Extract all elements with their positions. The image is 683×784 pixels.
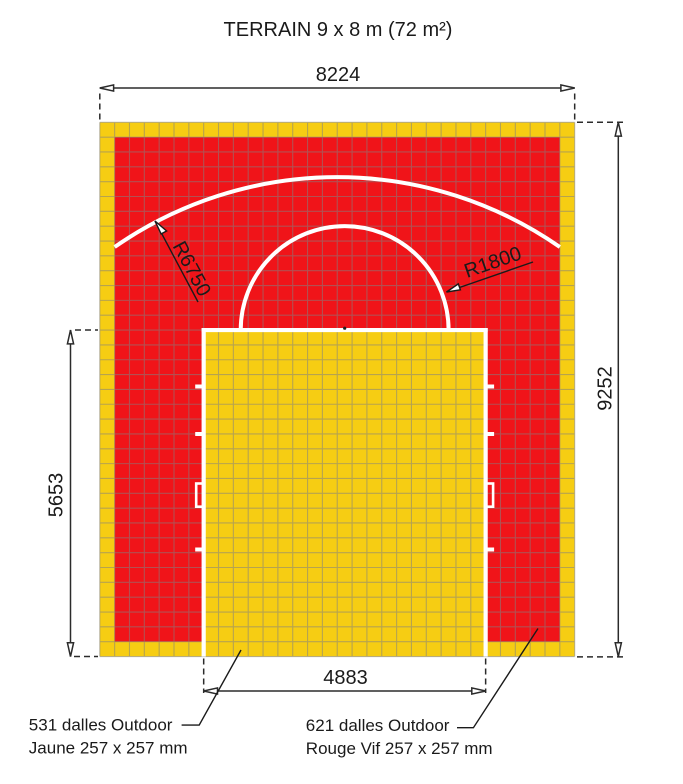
svg-text:TERRAIN 9 x 8 m (72 m²): TERRAIN 9 x 8 m (72 m²) [224, 19, 453, 41]
svg-text:621 dalles Outdoor: 621 dalles Outdoor [306, 716, 450, 735]
svg-text:4883: 4883 [323, 667, 368, 689]
svg-text:9252: 9252 [594, 366, 616, 411]
svg-text:5653: 5653 [45, 473, 67, 518]
svg-text:Rouge Vif 257 x 257 mm: Rouge Vif 257 x 257 mm [306, 739, 493, 758]
svg-text:531 dalles Outdoor: 531 dalles Outdoor [29, 716, 173, 735]
svg-text:Jaune 257 x 257 mm: Jaune 257 x 257 mm [29, 739, 188, 758]
svg-text:8224: 8224 [316, 64, 361, 86]
